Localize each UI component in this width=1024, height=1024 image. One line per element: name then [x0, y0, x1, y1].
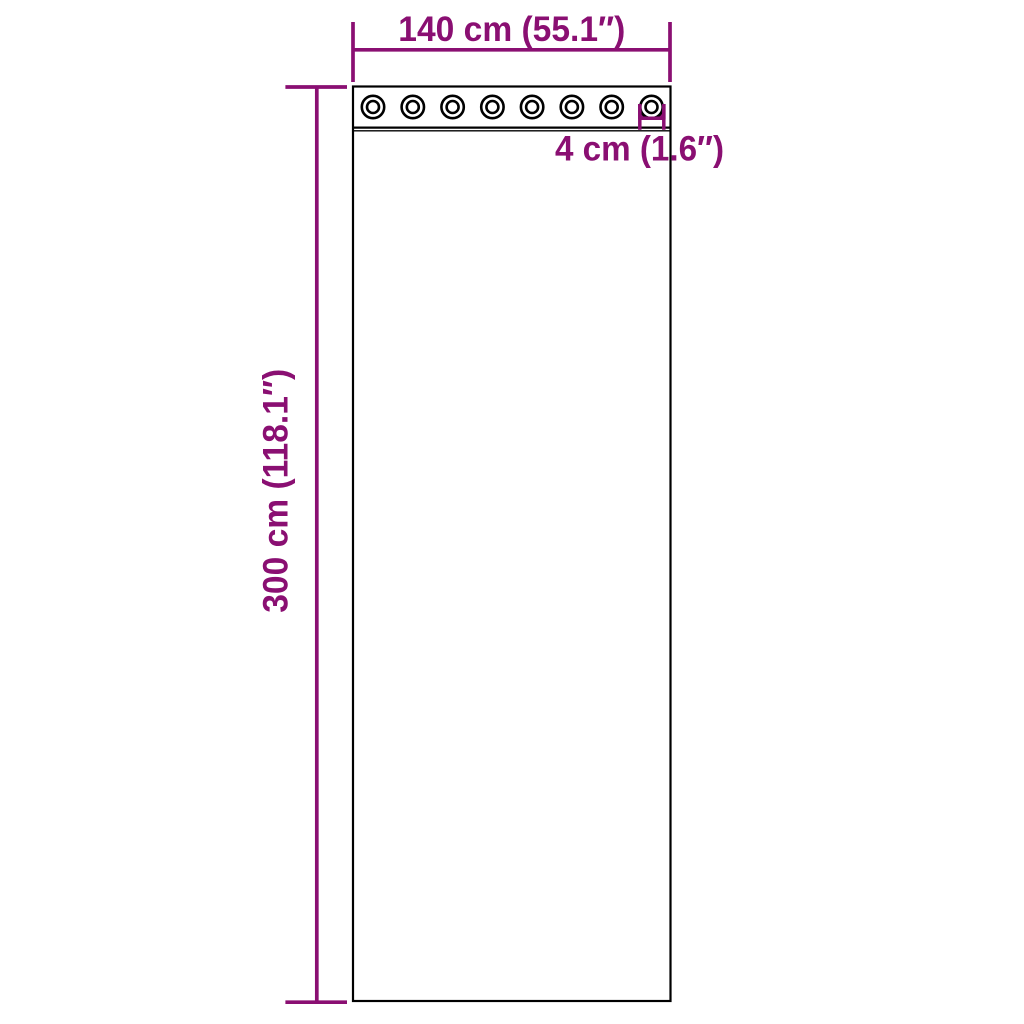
svg-text:140 cm (55.1″): 140 cm (55.1″)	[398, 9, 625, 49]
svg-text:300 cm (118.1″): 300 cm (118.1″)	[255, 369, 295, 613]
svg-text:4 cm (1.6″): 4 cm (1.6″)	[555, 129, 724, 169]
